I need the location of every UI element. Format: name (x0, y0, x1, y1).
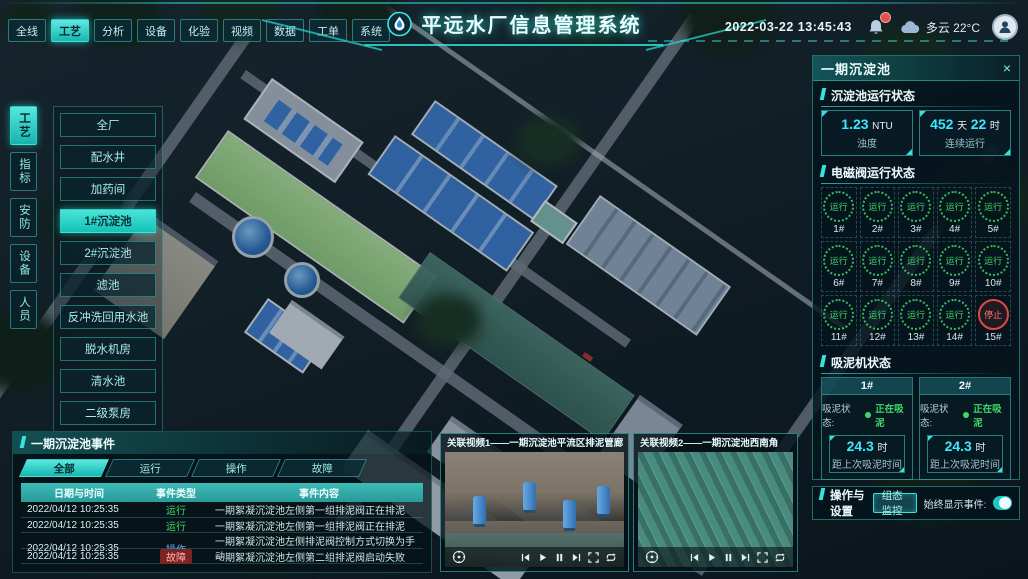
video-title: 关联视频1——一期沉淀池平流区排泥管廊 (441, 434, 628, 450)
mud-machine-id: 1# (822, 378, 912, 395)
menu-item-sedimentation-1[interactable]: 1#沉淀池 (60, 209, 156, 233)
valve-cell: 运行9# (937, 241, 973, 292)
section-title: 吸泥机状态 (821, 354, 1011, 371)
ptz-control-icon[interactable] (450, 549, 467, 565)
mud-machine-card-2: 2# 吸泥状态: 正在吸泥 24.3 时 距上次吸泥时间 (919, 377, 1011, 480)
menu-item-clear-water-pool[interactable]: 清水池 (60, 369, 156, 393)
cloud-icon (900, 20, 920, 34)
nav-tab-video[interactable]: 视频 (223, 19, 261, 42)
close-icon[interactable]: × (1003, 61, 1011, 75)
sidebar-tab-personnel[interactable]: 人员 (10, 290, 37, 329)
menu-item-sedimentation-2[interactable]: 2#沉淀池 (60, 241, 156, 265)
mud-scraper-section: 吸泥机状态 1# 吸泥状态: 正在吸泥 24.3 时 距上次吸泥时间 2# 吸泥… (813, 348, 1019, 482)
event-row: 2022/04/12 10:25:35 故障 一期絮凝沉淀池左侧第二组排泥阀启动… (21, 549, 423, 565)
valve-cell: 运行11# (821, 295, 857, 346)
events-tab-run[interactable]: 运行 (105, 459, 195, 477)
section-title: 沉淀池运行状态 (821, 87, 1011, 104)
fullscreen-icon[interactable] (585, 549, 602, 565)
skip-back-icon[interactable] (686, 549, 703, 565)
weather-text: 多云 22°C (926, 19, 980, 36)
dashboard: 全线 工艺 分析 设备 化验 视频 数据 工单 系统 平远水厂信息管理系统 20… (0, 0, 1028, 579)
valve-cell-stopped: 停止15# (975, 295, 1011, 346)
app-title-bar: 平远水厂信息管理系统 (365, 5, 664, 46)
uptime-stat: 452 天 22 时 连续运行 (919, 110, 1011, 156)
mud-machine-id: 2# (920, 378, 1010, 395)
mud-machine-card-1: 1# 吸泥状态: 正在吸泥 24.3 时 距上次吸泥时间 (821, 377, 913, 480)
valve-cell: 运行10# (975, 241, 1011, 292)
pause-icon[interactable] (720, 549, 737, 565)
uptime-label: 连续运行 (945, 135, 985, 150)
menu-item-dosing-room[interactable]: 加药间 (60, 177, 156, 201)
valve-cell: 运行3# (898, 187, 934, 238)
datetime-display: 2022-03-22 13:45:43 (725, 20, 852, 34)
sidebar-tab-metrics[interactable]: 指标 (10, 152, 37, 191)
pool-status-section: 沉淀池运行状态 1.23 NTU 浊度 452 天 22 时 连续运行 (813, 81, 1019, 158)
nav-tab-all-lines[interactable]: 全线 (8, 19, 46, 42)
menu-item-secondary-pump[interactable]: 二级泵房 (60, 401, 156, 425)
events-tab-operate[interactable]: 操作 (191, 459, 281, 477)
valve-grid: 运行1# 运行2# 运行3# 运行4# 运行5# 运行6# 运行7# 运行8# … (821, 187, 1011, 346)
video-controls (445, 547, 624, 567)
menu-item-dewatering-room[interactable]: 脱水机房 (60, 337, 156, 361)
ops-title: 操作与设置 (820, 487, 866, 519)
valve-cell: 运行1# (821, 187, 857, 238)
app-logo-icon (387, 11, 413, 37)
menu-item-whole-plant[interactable]: 全厂 (60, 113, 156, 137)
process-menu: 全厂 配水井 加药间 1#沉淀池 2#沉淀池 滤池 反冲洗回用水池 脱水机房 清… (53, 106, 163, 432)
events-table-header: 日期与时间事件类型事件内容 (21, 483, 423, 502)
nav-tab-lab[interactable]: 化验 (180, 19, 218, 42)
mud-status-label: 吸泥状态: (920, 401, 959, 429)
menu-item-filter-pool[interactable]: 滤池 (60, 273, 156, 297)
mud-time-box: 24.3 时 距上次吸泥时间 (829, 435, 905, 473)
valve-cell: 运行6# (821, 241, 857, 292)
status-dot (963, 412, 969, 418)
valve-cell: 运行14# (937, 295, 973, 346)
turbidity-stat: 1.23 NTU 浊度 (821, 110, 913, 156)
sedimentation-panel: 一期沉淀池 × 沉淀池运行状态 1.23 NTU 浊度 452 天 22 时 连… (812, 55, 1020, 480)
alarm-bell-icon[interactable] (864, 15, 888, 39)
valve-cell: 运行7# (860, 241, 896, 292)
events-title-bar: 一期沉淀池事件 (13, 432, 431, 454)
page-title: 平远水厂信息管理系统 (422, 9, 642, 38)
show-events-label: 始终显示事件: (924, 496, 987, 511)
valve-cell: 运行12# (860, 295, 896, 346)
operations-settings-bar: 操作与设置 组态监控 始终显示事件: (812, 486, 1020, 520)
play-icon[interactable] (703, 549, 720, 565)
pause-icon[interactable] (551, 549, 568, 565)
video-title: 关联视频2——一期沉淀池西南角 (634, 434, 797, 450)
sidebar-tab-devices[interactable]: 设备 (10, 244, 37, 283)
turbidity-unit: NTU (872, 121, 893, 132)
event-row: 2022/04/12 10:25:35 运行 一期絮凝沉淀池左侧第一组排泥阀正在… (21, 502, 423, 518)
nav-tab-process[interactable]: 工艺 (51, 19, 89, 42)
header-right: 2022-03-22 13:45:43 多云 22°C (725, 14, 1018, 40)
events-tabs: 全部 运行 操作 故障 (13, 454, 431, 481)
fullscreen-icon[interactable] (754, 549, 771, 565)
weather-display: 多云 22°C (900, 19, 980, 36)
video-panel-2: 关联视频2——一期沉淀池西南角 (633, 433, 798, 572)
skip-forward-icon[interactable] (737, 549, 754, 565)
valve-cell: 运行2# (860, 187, 896, 238)
uptime-days-unit: 天 (957, 121, 967, 132)
valve-cell: 运行4# (937, 187, 973, 238)
loop-icon[interactable] (602, 549, 619, 565)
panel-title-bar: 一期沉淀池 × (813, 56, 1019, 81)
panel-title: 一期沉淀池 (821, 59, 891, 78)
loop-icon[interactable] (771, 549, 788, 565)
alarm-badge (880, 12, 891, 23)
section-title: 电磁阀运行状态 (821, 164, 1011, 181)
sidebar-tab-security[interactable]: 安防 (10, 198, 37, 237)
uptime-days: 452 (930, 116, 953, 132)
mud-status: 正在吸泥 (875, 401, 912, 429)
show-events-toggle[interactable] (993, 496, 1012, 510)
events-tab-fault[interactable]: 故障 (277, 459, 367, 477)
valve-cell: 运行13# (898, 295, 934, 346)
valve-cell: 运行8# (898, 241, 934, 292)
turbidity-label: 浊度 (857, 135, 877, 150)
mud-status-label: 吸泥状态: (822, 401, 861, 429)
events-title: 一期沉淀池事件 (21, 435, 115, 452)
valves-section: 电磁阀运行状态 运行1# 运行2# 运行3# 运行4# 运行5# 运行6# 运行… (813, 158, 1019, 348)
video-controls (638, 547, 793, 567)
mud-time-box: 24.3 时 距上次吸泥时间 (927, 435, 1003, 473)
valve-cell: 运行5# (975, 187, 1011, 238)
mud-status: 正在吸泥 (973, 401, 1010, 429)
ptz-control-icon[interactable] (643, 549, 660, 565)
sidebar-tabs: 工艺 指标 安防 设备 人员 (10, 106, 37, 329)
user-avatar[interactable] (992, 14, 1018, 40)
events-table: 日期与时间事件类型事件内容 2022/04/12 10:25:35 运行 一期絮… (13, 481, 431, 564)
nav-tab-equipment[interactable]: 设备 (137, 19, 175, 42)
menu-item-backwash-reuse-pool[interactable]: 反冲洗回用水池 (60, 305, 156, 329)
status-dot (865, 412, 871, 418)
sidebar-tab-process[interactable]: 工艺 (10, 106, 37, 145)
title-dashed-line (648, 40, 1008, 42)
scada-monitor-button[interactable]: 组态监控 (873, 493, 917, 513)
play-icon[interactable] (534, 549, 551, 565)
event-row: 2022/04/12 10:25:35 操作 一期絮凝沉淀池左侧排泥阀控制方式切… (21, 533, 423, 549)
header-accent-line (0, 2, 1028, 4)
event-row: 2022/04/12 10:25:35 运行 一期絮凝沉淀池左侧第一组排泥阀正在… (21, 518, 423, 534)
uptime-hours-unit: 时 (990, 121, 1000, 132)
skip-back-icon[interactable] (517, 549, 534, 565)
turbidity-value: 1.23 (841, 116, 868, 132)
events-tab-all[interactable]: 全部 (19, 459, 109, 477)
video-panel-1: 关联视频1——一期沉淀池平流区排泥管廊 (440, 433, 629, 572)
uptime-hours: 22 (971, 116, 987, 132)
nav-tab-analysis[interactable]: 分析 (94, 19, 132, 42)
events-panel: 一期沉淀池事件 全部 运行 操作 故障 日期与时间事件类型事件内容 2022/0… (12, 431, 432, 573)
skip-forward-icon[interactable] (568, 549, 585, 565)
menu-item-distribution-well[interactable]: 配水井 (60, 145, 156, 169)
